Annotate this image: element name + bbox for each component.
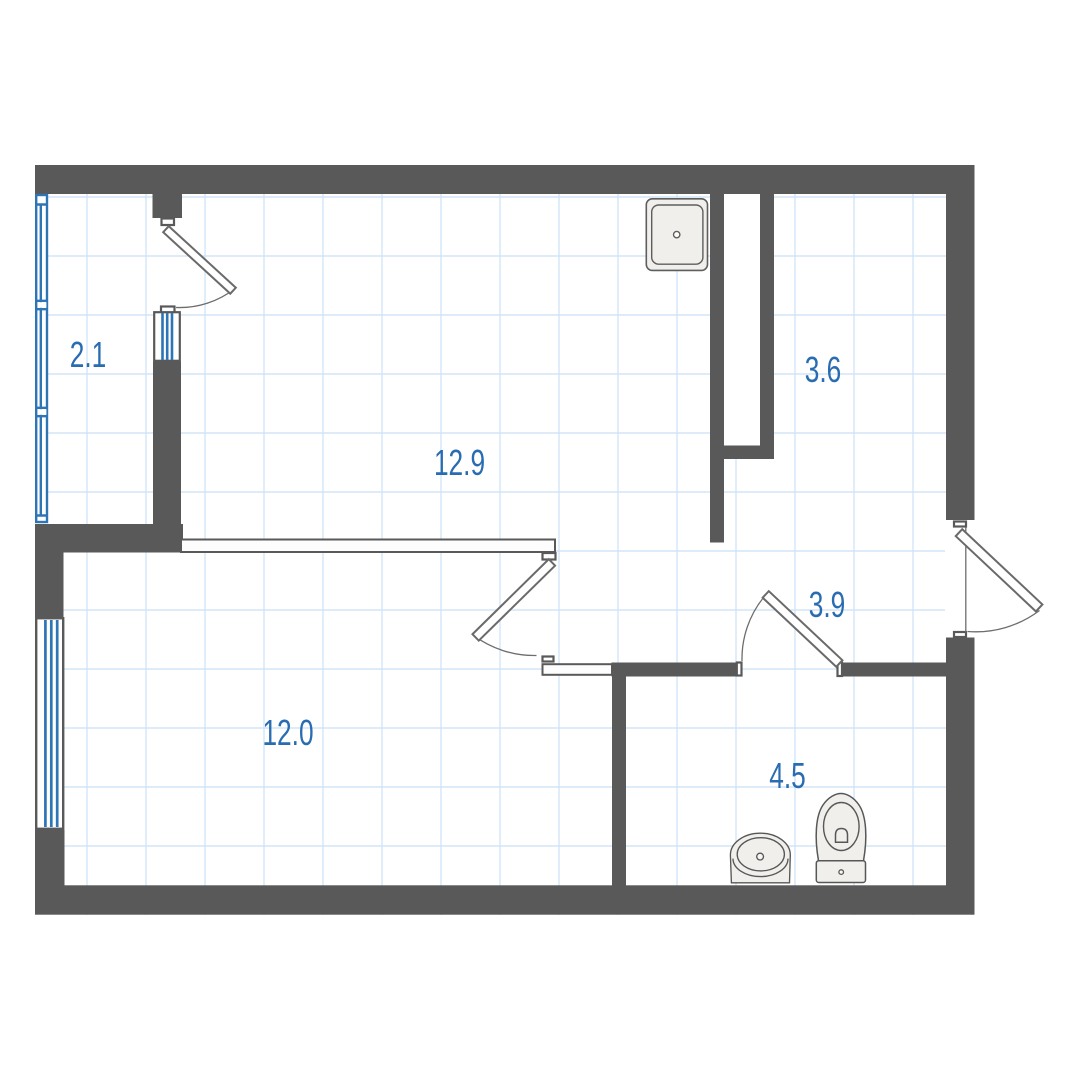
- svg-text:12.9: 12.9: [434, 442, 485, 483]
- svg-text:2.1: 2.1: [70, 334, 107, 375]
- svg-text:12.0: 12.0: [262, 712, 313, 753]
- svg-text:3.9: 3.9: [809, 584, 846, 625]
- svg-text:3.6: 3.6: [805, 349, 842, 390]
- svg-text:4.5: 4.5: [769, 755, 806, 796]
